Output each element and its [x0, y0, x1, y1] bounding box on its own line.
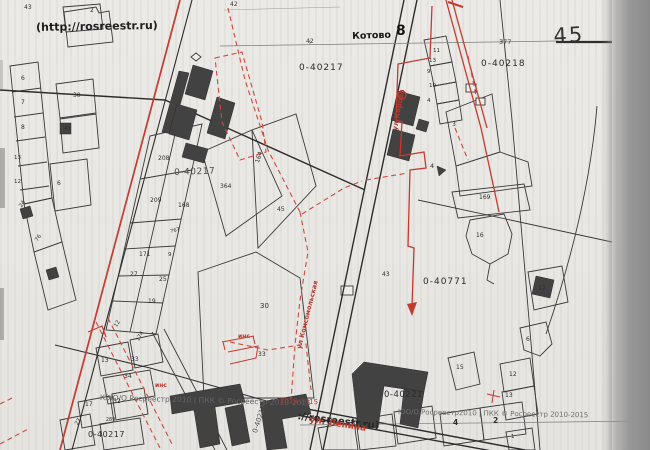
map-drawing — [0, 0, 650, 450]
parcel-boundaries — [10, 0, 612, 450]
scan-smudge — [0, 148, 5, 208]
section-line-top — [220, 39, 558, 46]
section-line-bottom — [300, 421, 650, 425]
scanner-shadow-band — [606, 0, 650, 450]
survey-arrow — [437, 166, 446, 176]
scan-smudge — [0, 288, 4, 340]
cadastral-map-scan: (http://rosreestr.ru)Котово84537742420-4… — [0, 0, 650, 450]
road-top-left — [0, 90, 365, 190]
railway-black-line — [72, 0, 192, 450]
roads — [0, 0, 650, 450]
railway-red-line — [60, 0, 180, 450]
building-footprints — [20, 65, 554, 450]
diamond-marker — [191, 53, 201, 61]
scan-smudge — [0, 60, 3, 90]
